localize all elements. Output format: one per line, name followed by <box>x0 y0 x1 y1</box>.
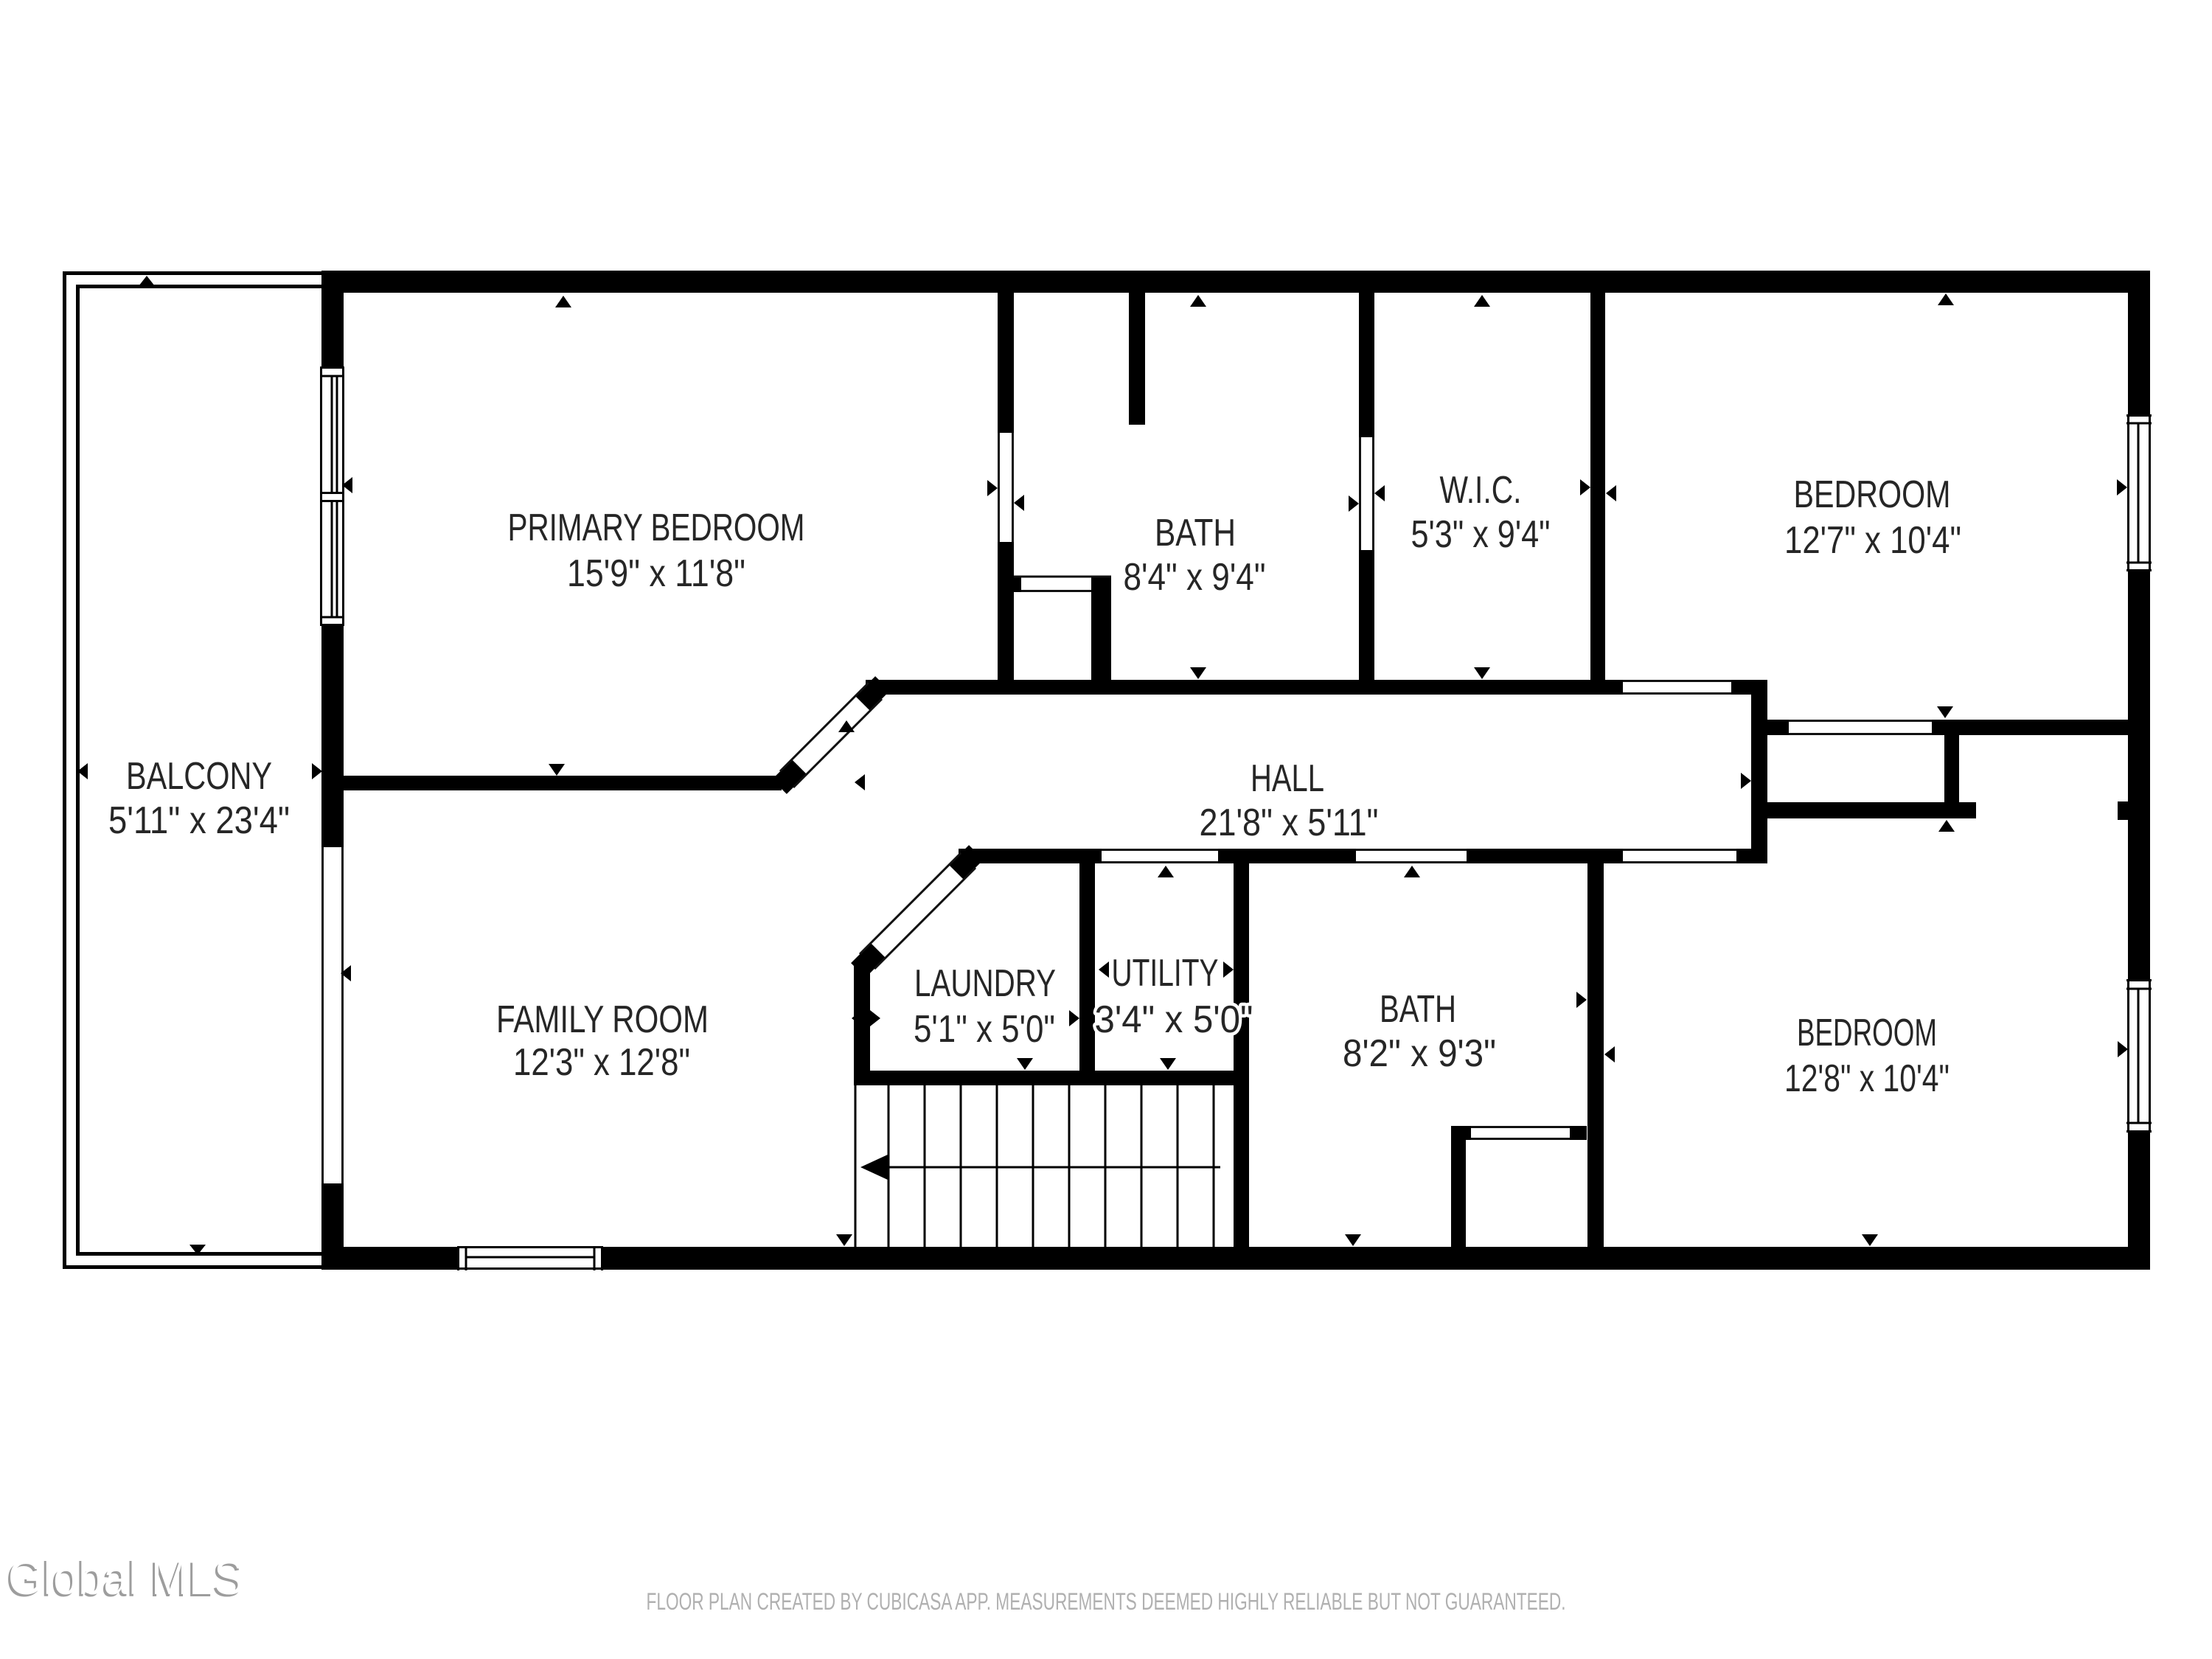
svg-text:BATH: BATH <box>1155 512 1236 554</box>
svg-text:12'3" x 12'8": 12'3" x 12'8" <box>513 1041 690 1084</box>
svg-text:BATH: BATH <box>1380 988 1456 1031</box>
svg-text:BEDROOM: BEDROOM <box>1797 1012 1937 1054</box>
svg-text:UTILITY: UTILITY <box>1112 952 1219 995</box>
svg-text:15'9" x 11'8": 15'9" x 11'8" <box>567 552 745 595</box>
svg-text:8'4" x 9'4": 8'4" x 9'4" <box>1124 556 1266 599</box>
svg-text:12'8" x 10'4": 12'8" x 10'4" <box>1784 1057 1950 1100</box>
svg-text:21'8" x 5'11": 21'8" x 5'11" <box>1200 801 1379 844</box>
svg-text:PRIMARY BEDROOM: PRIMARY BEDROOM <box>508 507 805 549</box>
svg-text:3'4" x 5'0": 3'4" x 5'0" <box>1095 998 1253 1041</box>
svg-text:FLOOR PLAN CREATED BY CUBICASA: FLOOR PLAN CREATED BY CUBICASA APP. MEAS… <box>647 1588 1566 1615</box>
svg-text:LAUNDRY: LAUNDRY <box>914 962 1056 1005</box>
svg-text:5'1" x 5'0": 5'1" x 5'0" <box>914 1008 1055 1051</box>
svg-text:5'11" x 23'4": 5'11" x 23'4" <box>108 799 290 842</box>
svg-text:HALL: HALL <box>1251 757 1324 800</box>
svg-text:BALCONY: BALCONY <box>126 755 272 798</box>
svg-text:W.I.C.: W.I.C. <box>1440 469 1522 512</box>
svg-text:BEDROOM: BEDROOM <box>1794 473 1951 516</box>
svg-text:5'3" x 9'4": 5'3" x 9'4" <box>1411 513 1551 556</box>
svg-text:FAMILY ROOM: FAMILY ROOM <box>496 998 709 1041</box>
svg-text:8'2" x 9'3": 8'2" x 9'3" <box>1343 1032 1496 1075</box>
svg-text:Global MLS: Global MLS <box>8 1550 244 1604</box>
svg-text:12'7" x 10'4": 12'7" x 10'4" <box>1784 519 1961 562</box>
